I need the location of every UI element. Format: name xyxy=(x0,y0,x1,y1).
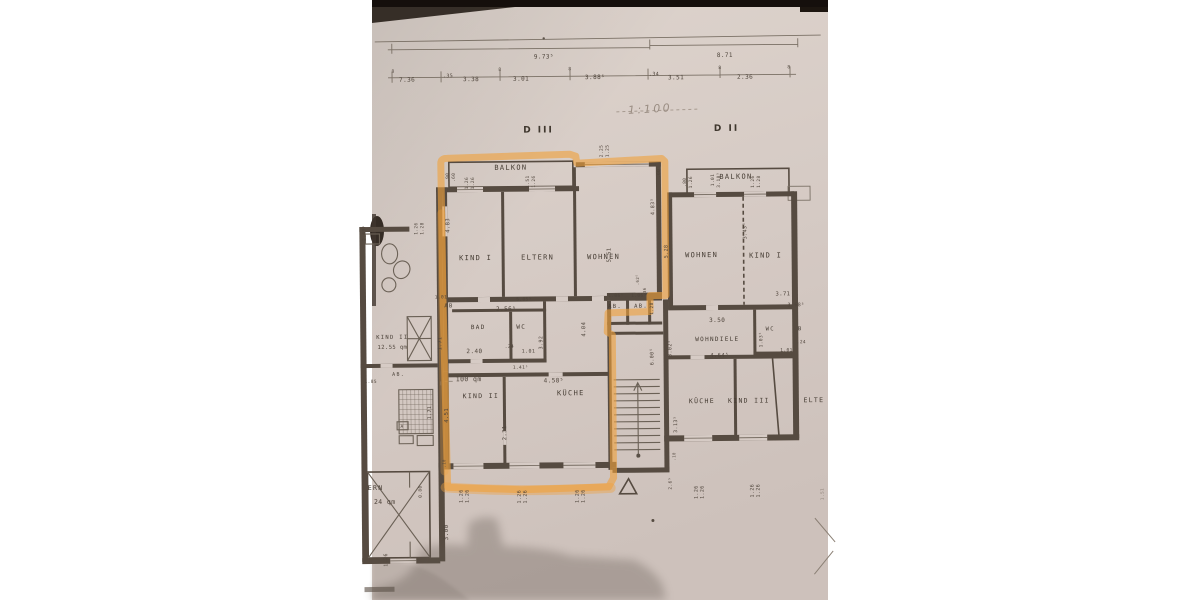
dim-label: 3.02⁵ xyxy=(667,340,673,357)
dim-label: 3.38 xyxy=(463,76,479,83)
dim-label: 0.80 xyxy=(418,485,424,497)
room-label-wc-d2: WC xyxy=(766,326,775,332)
dim-label: 1.06⁵ xyxy=(608,293,624,299)
dim-label: .10 xyxy=(441,459,446,468)
room-label-ab2-stair: AB. xyxy=(634,304,648,310)
dim-label: 3.71 xyxy=(776,291,791,297)
room-label-kind3-d2: KIND III xyxy=(728,397,770,405)
room-label-wohndiele-d2: WOHNDIELE xyxy=(695,336,739,343)
dim-label: 1.28 xyxy=(649,302,655,314)
room-label-wohnen-d2: WOHNEN xyxy=(685,251,718,259)
dim-label: 1.26 xyxy=(523,490,529,504)
dim-label: 4.64⁵ xyxy=(710,352,729,359)
dim-label: 4.83⁵ xyxy=(650,198,656,215)
dim-label: 2.25 xyxy=(599,145,605,157)
dim-label: A xyxy=(401,424,404,430)
dim-label: .24 xyxy=(797,339,806,345)
room-label-kind1-d2: KIND I xyxy=(749,251,782,259)
room-label-ern-left: ERN xyxy=(368,484,384,492)
dim-label: 5.05⁵ xyxy=(516,297,532,303)
dim-label: 5.28 xyxy=(664,245,670,259)
section-label-d2: D II xyxy=(714,124,739,134)
dim-total-right: 8.71 xyxy=(717,52,733,59)
screenshot-canvas: 9.73⁵8.717.36.353.383.013.88⁵.343.512.36… xyxy=(0,0,1200,600)
dim-label: 4.51 xyxy=(444,408,450,423)
area-label-1255qm: 12.55 qm xyxy=(378,345,408,351)
dim-label: 1.26 xyxy=(465,489,471,503)
dim-label: .60 xyxy=(451,173,457,182)
dim-label: .24 xyxy=(505,344,514,350)
dim-label: 2.69⁵ xyxy=(361,225,367,241)
room-label-ab1-stair: AB. xyxy=(608,304,622,310)
dim-label: 3.88⁵ xyxy=(585,74,605,81)
dim-label: 1.01 xyxy=(780,347,792,353)
room-label-eltern-d3: ELTERN xyxy=(521,253,554,261)
dim-label: 2.56⁵ xyxy=(496,306,516,313)
room-label-balkon-d2: BALKON xyxy=(719,173,752,181)
dim-label: 1.03⁵ xyxy=(758,332,764,348)
dim-label: 4.58⁵ xyxy=(544,377,564,384)
dim-label: 8 xyxy=(718,65,721,71)
area-label-24qm: 24 qm xyxy=(374,498,396,506)
dim-label: 3.13⁵ xyxy=(673,416,679,433)
dim-label: 1.01 xyxy=(435,294,447,300)
dim-label: .62⁵ xyxy=(635,274,640,285)
dim-label: 3.50 xyxy=(709,317,725,324)
room-label-bad-d3: BAD xyxy=(471,324,486,331)
dim-label: 1.28 xyxy=(756,175,762,187)
dim-label: .34 xyxy=(649,71,659,77)
dim-label: 1.51 xyxy=(820,488,826,500)
dim-label: AB. xyxy=(392,372,405,378)
dim-label: 1.71 xyxy=(427,406,433,420)
dim-label: 2.40 xyxy=(466,348,482,355)
dim-label: .90 xyxy=(445,173,451,182)
dim-label: 3.00 xyxy=(443,524,450,540)
dim-label: 4.04 xyxy=(581,321,587,336)
dim-label: 1.71 xyxy=(437,337,443,351)
room-label-wc-d3: WC xyxy=(516,324,526,331)
dim-label: .80 xyxy=(682,178,688,187)
dim-label: 4.83 xyxy=(445,218,451,233)
dim-label: .35 xyxy=(443,73,453,79)
dim-label: 8 xyxy=(568,66,571,72)
dim-label: 5.51 xyxy=(607,247,613,262)
room-label-wohnen-d3: WOHNEN xyxy=(587,253,620,261)
room-label-kueche-d3: KÜCHE xyxy=(557,388,585,397)
dim-total-left: 9.73⁵ xyxy=(534,53,554,60)
section-label-d3: D III xyxy=(523,125,554,135)
dim-label: 1.26 xyxy=(750,175,756,187)
dim-label: 1.26 xyxy=(413,222,419,234)
dim-label: 1.25 xyxy=(605,145,611,157)
dim-label: 3.68⁵ xyxy=(787,302,804,308)
dim-label: 1.06⁵ xyxy=(631,293,647,299)
room-label-kind1-d3: KIND I xyxy=(459,254,492,262)
dim-label: 2.31 xyxy=(502,425,508,440)
room-label-ab-d3: AB xyxy=(444,303,453,309)
dim-label: 1.85 xyxy=(364,379,376,385)
dim-label: 1.26 xyxy=(756,484,762,498)
dim-label: 8 xyxy=(498,67,501,73)
photo-area: 9.73⁵8.717.36.353.383.013.88⁵.343.512.36… xyxy=(358,0,836,600)
area-label-100qm: 100 qm xyxy=(456,375,482,383)
dim-label: 1.51 xyxy=(525,175,531,187)
room-label-balkon-d3: BALKON xyxy=(494,164,527,172)
dim-label: 3.92 xyxy=(538,336,544,350)
dim-label: 3.01 xyxy=(513,76,529,83)
dim-label: 1.26 xyxy=(470,177,476,189)
room-label-kueche-d2: KÜCHE xyxy=(689,396,715,405)
dim-label: .10 xyxy=(671,452,676,461)
dim-label: 1.26 xyxy=(531,175,537,187)
dim-label: 2.6⁵ xyxy=(668,477,674,489)
room-label-kind2-left: KIND II xyxy=(376,335,408,341)
room-label-kind2-d3: KIND II xyxy=(463,392,500,400)
dim-label: 2.36 xyxy=(737,74,753,81)
dim-label: B xyxy=(798,326,803,332)
dim-label: 6.00⁵ xyxy=(649,348,655,365)
dim-label: 1.26 xyxy=(700,485,706,499)
dim-label: 1.41⁵ xyxy=(513,365,529,371)
room-label-elte-d2: ELTE xyxy=(803,396,824,404)
dim-label: 1.26 xyxy=(464,177,470,189)
scale-note: 1:100 xyxy=(628,101,673,117)
floorplan-photo: 9.73⁵8.717.36.353.383.013.88⁵.343.512.36… xyxy=(0,0,1200,600)
dim-label: 1.26 xyxy=(581,489,587,503)
dim-label: .60 xyxy=(656,169,662,178)
dim-label: 8 xyxy=(391,69,394,75)
dim-label: 1.01 xyxy=(522,349,536,355)
dim-label: 3.18⁵ xyxy=(716,172,722,188)
dim-label: 3.43⁵ xyxy=(742,222,748,239)
dim-label: 1.01 xyxy=(710,174,716,186)
dim-label: 1.26 xyxy=(688,176,694,188)
dim-label: 8 xyxy=(787,64,790,70)
dim-label: 7.36 xyxy=(399,77,415,84)
dim-label: 3.51 xyxy=(668,74,684,81)
dim-label: 1.28 xyxy=(419,222,425,234)
